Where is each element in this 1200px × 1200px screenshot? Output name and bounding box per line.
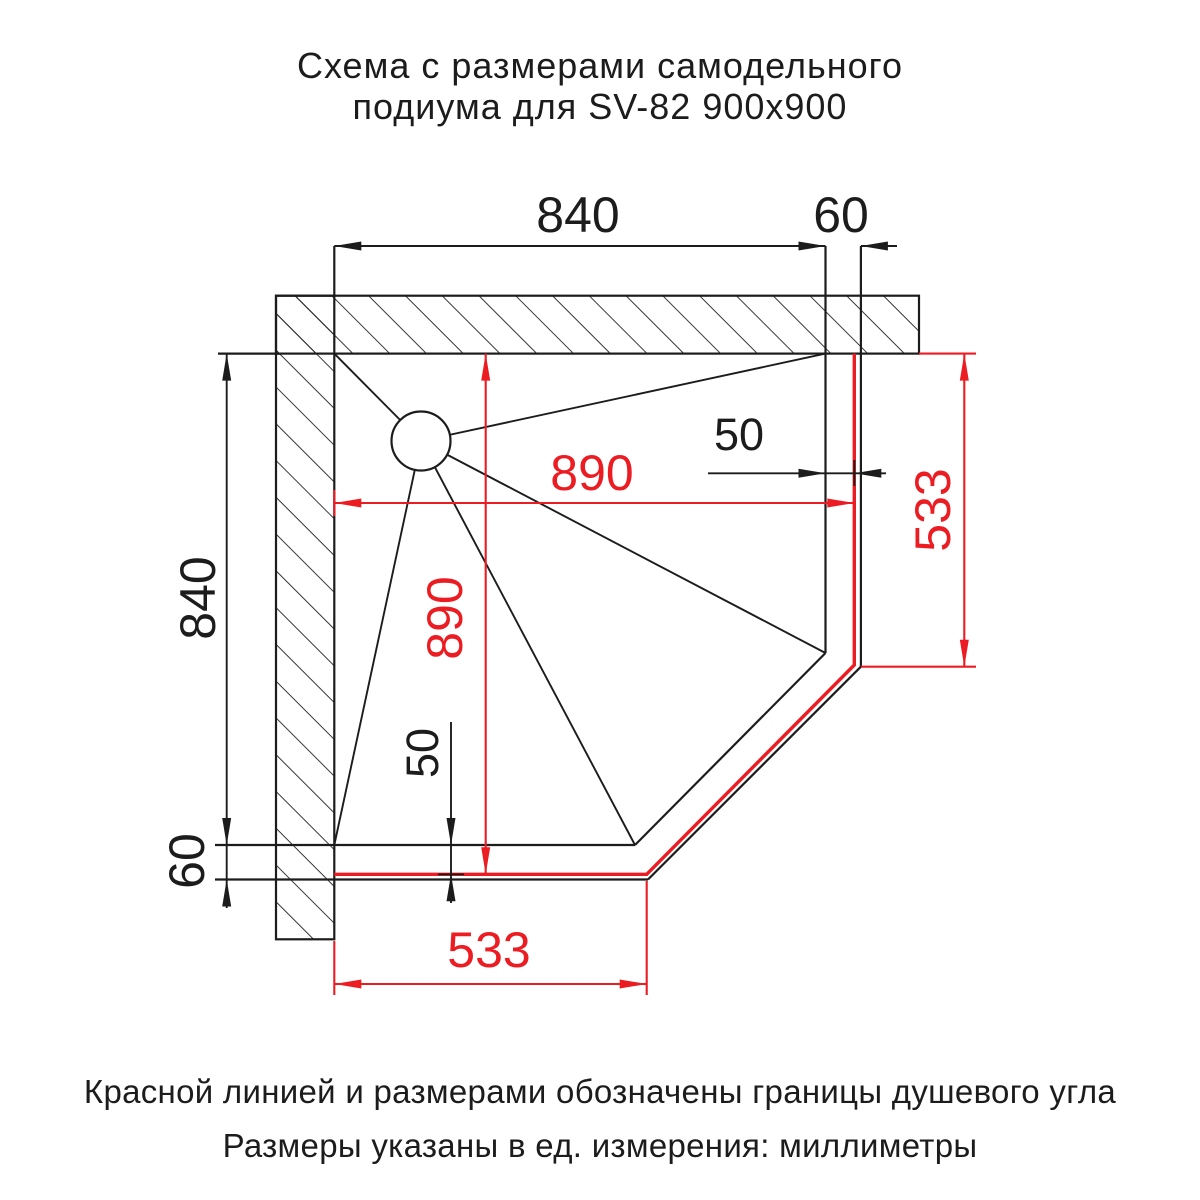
footer-note-units: Размеры указаны в ед. измерения: миллиме… (223, 1127, 978, 1164)
dim-label-60-left: 60 (159, 833, 215, 889)
dim-label-50-right: 50 (714, 409, 764, 460)
arrow-533-right-top (960, 354, 969, 381)
podium-inner-chamfer (635, 653, 826, 845)
arrow-533-right-bottom (960, 640, 969, 667)
wall-top-hatch (276, 296, 919, 354)
dim-label-840-left: 840 (170, 556, 226, 639)
arrow-533-bottom-right (620, 980, 647, 989)
dim-gap-50-right: 50 (708, 409, 886, 486)
arrow-50-right-out (854, 469, 881, 478)
arrow-840-left-bottom (222, 818, 231, 845)
arrow-50-bottom-in (447, 818, 456, 845)
arrow-533-bottom-left (334, 980, 361, 989)
podium-outer-chamfer (648, 667, 861, 880)
arrow-50-right-in (799, 469, 826, 478)
dim-left-840-60: 840 60 (159, 354, 231, 908)
podium-diagram: Схема с размерами самодельного подиума д… (0, 0, 1200, 1200)
dim-top-840-60: 840 60 (334, 187, 897, 251)
dim-chamfer-533-right: 533 (861, 354, 976, 667)
dim-label-50-bottom: 50 (397, 728, 448, 778)
dim-chamfer-533-bottom: 533 (334, 881, 646, 995)
dim-label-890-h: 890 (550, 445, 633, 501)
footer-note-red-legend: Красной линией и размерами обозначены гр… (84, 1073, 1116, 1110)
dim-label-60-top: 60 (813, 187, 869, 243)
dim-label-890-v: 890 (417, 576, 473, 659)
dim-label-533-right: 533 (905, 468, 961, 551)
arrow-50-bottom-out (447, 874, 456, 901)
arrow-60-left (222, 880, 231, 907)
wall-left-hatch (276, 296, 334, 940)
arrow-890-h-left (334, 499, 361, 508)
slope-line-top-right (421, 354, 826, 441)
drawing-page: Схема с размерами самодельного подиума д… (0, 0, 1200, 1200)
arrow-840-left-top (222, 354, 231, 381)
arrow-890-h-right (827, 499, 854, 508)
dim-label-840-top: 840 (536, 187, 619, 243)
dim-label-533-bottom: 533 (447, 922, 530, 978)
arrow-890-v-bottom (481, 847, 490, 874)
arrow-890-v-top (481, 354, 490, 381)
page-title-line1: Схема с размерами самодельного (297, 45, 903, 86)
page-title-line2: подиума для SV-82 900x900 (353, 86, 848, 127)
arrow-840-top-left (334, 242, 361, 251)
drain-circle (392, 412, 451, 471)
